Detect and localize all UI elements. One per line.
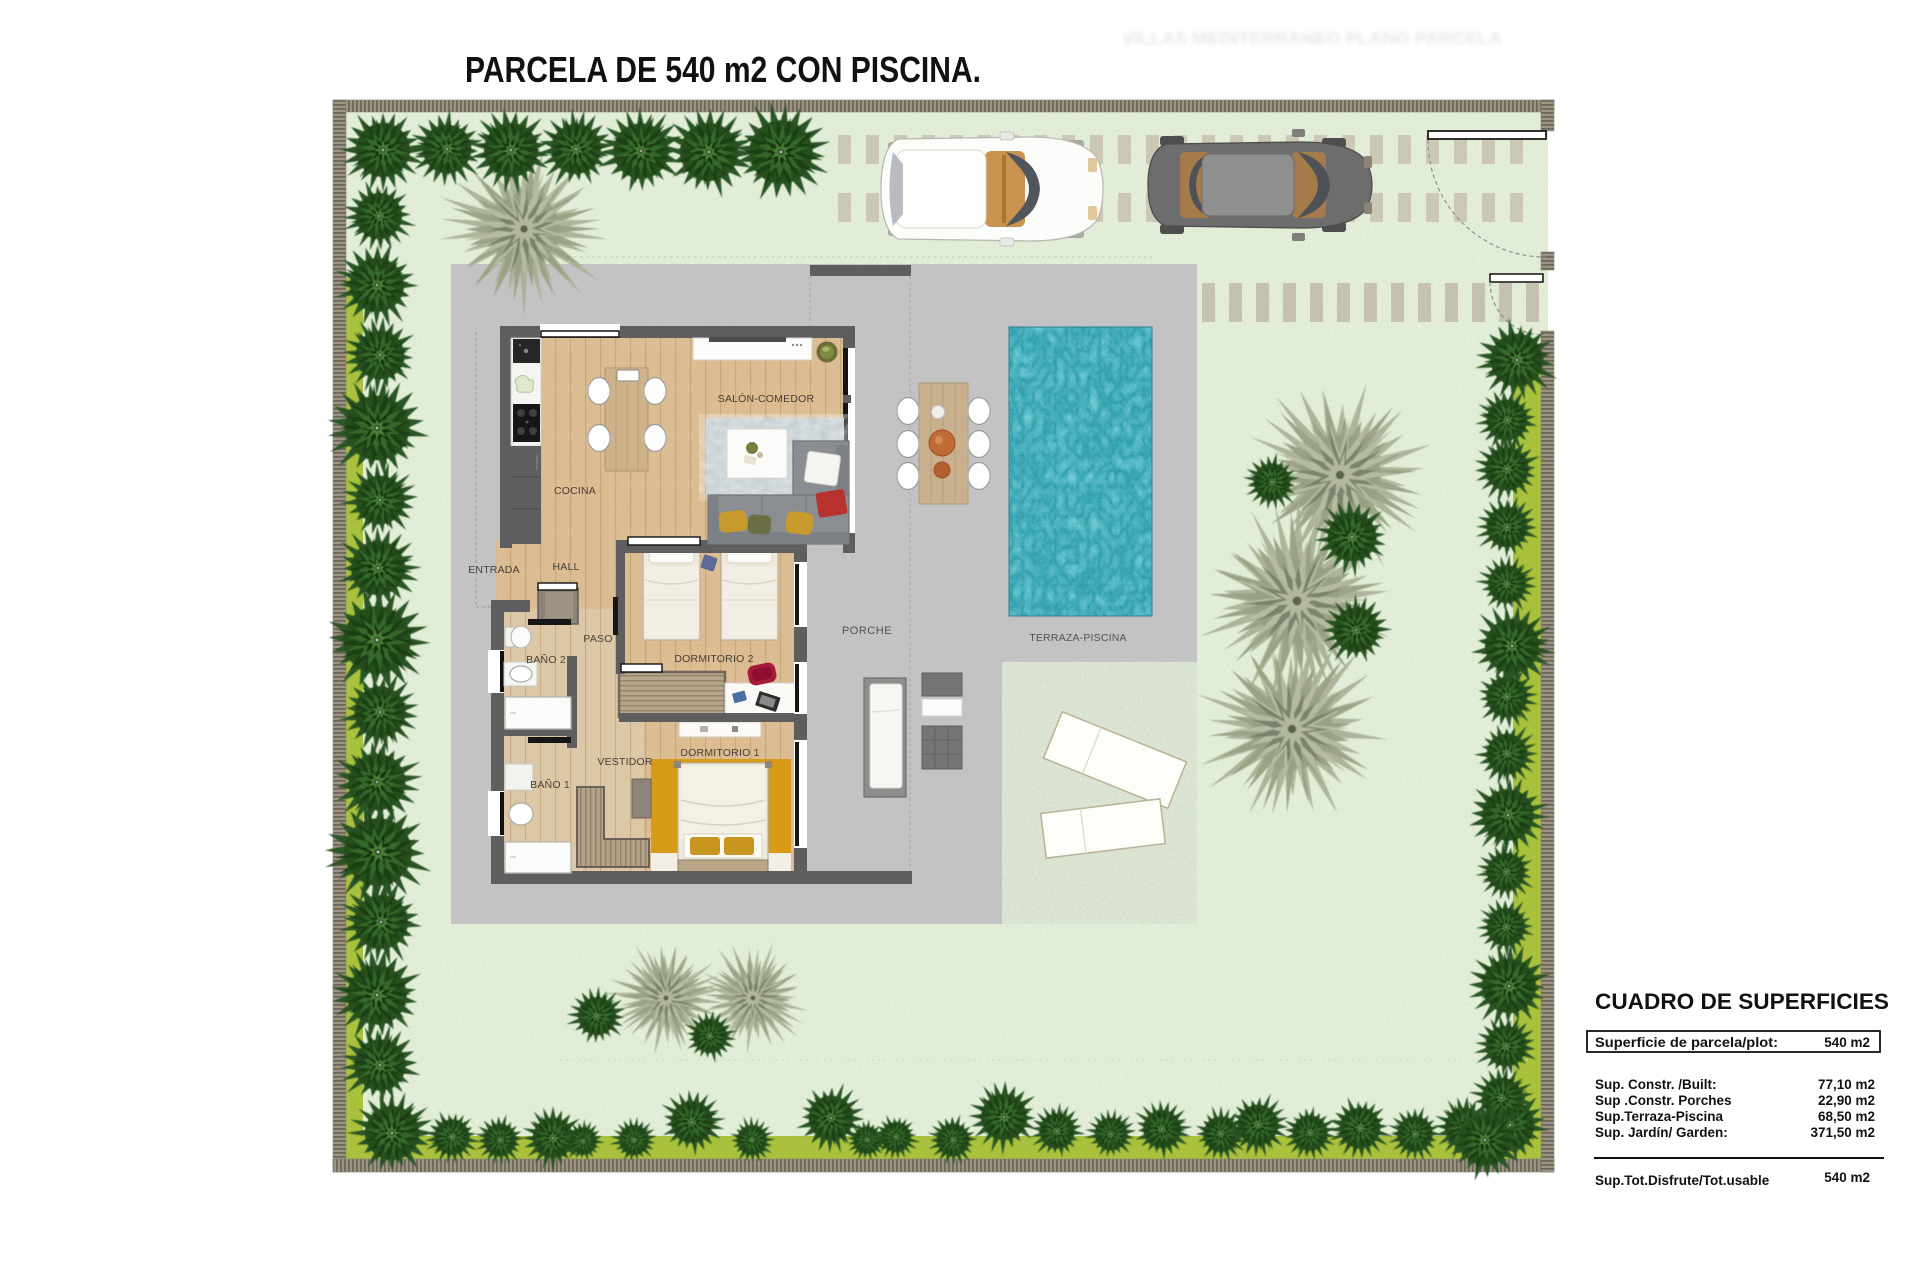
svg-text:BAÑO 2: BAÑO 2 bbox=[526, 653, 566, 666]
svg-text:BAÑO 1: BAÑO 1 bbox=[530, 778, 570, 791]
svg-text:SALÓN-COMEDOR: SALÓN-COMEDOR bbox=[718, 392, 815, 405]
svg-text:Sup. Constr. /Built:: Sup. Constr. /Built: bbox=[1595, 1077, 1717, 1092]
svg-text:HALL: HALL bbox=[552, 561, 579, 573]
svg-text:VESTIDOR: VESTIDOR bbox=[597, 756, 652, 768]
svg-text:COCINA: COCINA bbox=[554, 485, 596, 497]
svg-text:540 m2: 540 m2 bbox=[1824, 1170, 1870, 1185]
svg-text:Sup.Tot.Disfrute/Tot.usable: Sup.Tot.Disfrute/Tot.usable bbox=[1595, 1173, 1770, 1188]
svg-text:PASO: PASO bbox=[583, 633, 612, 645]
svg-text:DORMITORIO 1: DORMITORIO 1 bbox=[680, 747, 759, 759]
svg-text:77,10 m2: 77,10 m2 bbox=[1818, 1077, 1875, 1092]
svg-text:ENTRADA: ENTRADA bbox=[468, 564, 520, 576]
svg-text:TERRAZA-PISCINA: TERRAZA-PISCINA bbox=[1029, 632, 1127, 644]
svg-text:VILLAS MEDITERRANEO PLANO PARC: VILLAS MEDITERRANEO PLANO PARCELA bbox=[1122, 29, 1502, 48]
svg-text:540 m2: 540 m2 bbox=[1824, 1035, 1870, 1050]
svg-text:Sup.Terraza-Piscina: Sup.Terraza-Piscina bbox=[1595, 1109, 1724, 1124]
svg-text:PARCELA DE 540 m2 CON PISCINA.: PARCELA DE 540 m2 CON PISCINA. bbox=[465, 49, 981, 90]
svg-text:DORMITORIO 2: DORMITORIO 2 bbox=[674, 653, 753, 665]
svg-text:Superficie de parcela/plot:: Superficie de parcela/plot: bbox=[1595, 1035, 1778, 1050]
svg-text:PORCHE: PORCHE bbox=[842, 625, 892, 637]
svg-text:CUADRO DE SUPERFICIES: CUADRO DE SUPERFICIES bbox=[1595, 989, 1889, 1014]
svg-text:68,50 m2: 68,50 m2 bbox=[1818, 1109, 1875, 1124]
svg-text:Sup .Constr. Porches: Sup .Constr. Porches bbox=[1595, 1093, 1732, 1108]
svg-text:22,90 m2: 22,90 m2 bbox=[1818, 1093, 1875, 1108]
svg-text:Sup. Jardín/ Garden:: Sup. Jardín/ Garden: bbox=[1595, 1125, 1728, 1140]
svg-text:371,50 m2: 371,50 m2 bbox=[1810, 1125, 1875, 1140]
